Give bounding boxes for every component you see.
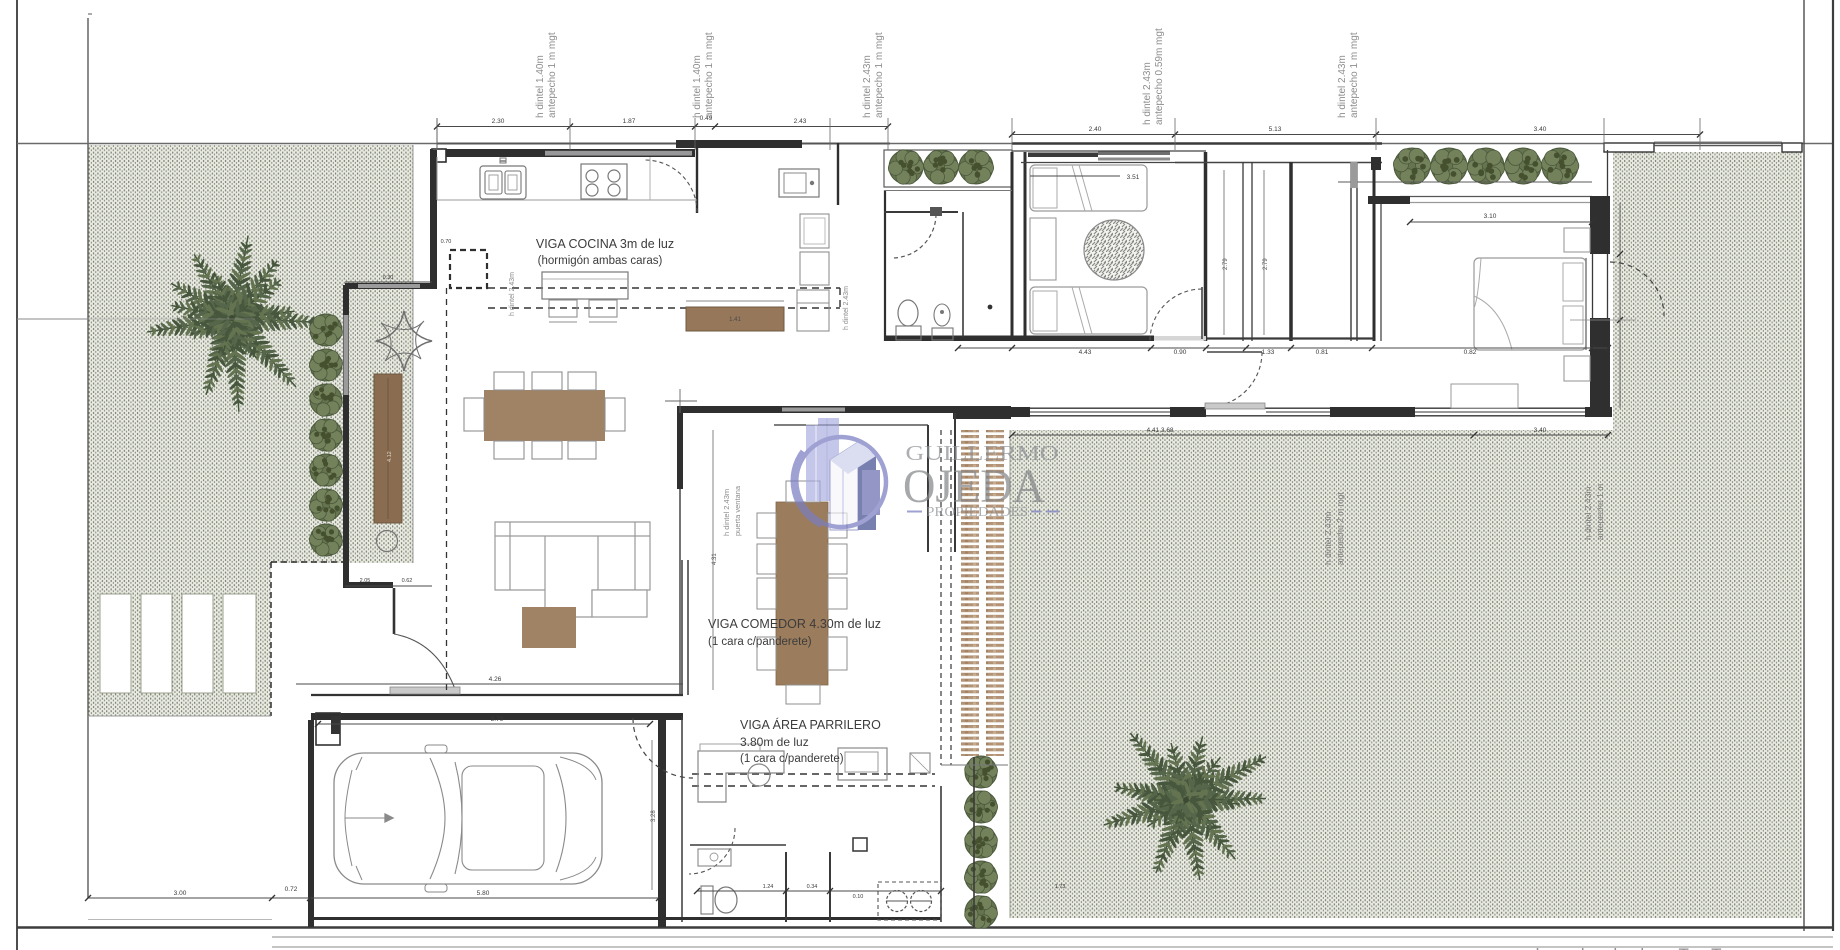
svg-text:VIGA COMEDOR 4.30m de luz: VIGA COMEDOR 4.30m de luz xyxy=(708,617,881,631)
svg-text:3.28: 3.28 xyxy=(651,810,657,822)
svg-text:h dintel 2.43m: h dintel 2.43m xyxy=(1142,62,1153,125)
svg-text:3.00: 3.00 xyxy=(174,890,187,897)
svg-text:0.30: 0.30 xyxy=(383,275,394,281)
svg-text:1.41: 1.41 xyxy=(729,317,741,323)
svg-text:1.33: 1.33 xyxy=(1262,349,1275,356)
svg-text:h dintel 2.43m: h dintel 2.43m xyxy=(1323,512,1333,565)
svg-text:PROPIEDADES: PROPIEDADES xyxy=(926,505,1028,520)
svg-text:3.40: 3.40 xyxy=(1534,126,1547,133)
svg-text:0.82: 0.82 xyxy=(1464,349,1477,356)
svg-text:2.05: 2.05 xyxy=(360,578,371,584)
svg-text:0.62: 0.62 xyxy=(402,578,413,584)
svg-text:(hormigón ambas caras): (hormigón ambas caras) xyxy=(538,255,663,267)
svg-text:3.40: 3.40 xyxy=(1534,427,1547,434)
svg-text:antepecho 2 m mgt: antepecho 2 m mgt xyxy=(1335,492,1345,565)
svg-text:(1 cara c/panderete): (1 cara c/panderete) xyxy=(740,753,844,765)
svg-text:0.81: 0.81 xyxy=(1316,349,1329,356)
svg-text:h dintel 2.43m: h dintel 2.43m xyxy=(1583,487,1593,540)
svg-text:0.34: 0.34 xyxy=(807,884,818,890)
svg-text:h dintel 2.43m: h dintel 2.43m xyxy=(862,55,873,118)
svg-text:antepecho 1 m mgt: antepecho 1 m mgt xyxy=(547,32,558,118)
svg-text:0.72: 0.72 xyxy=(285,886,298,893)
svg-text:3.10: 3.10 xyxy=(1484,213,1497,220)
svg-text:VIGA COCINA 3m de luz: VIGA COCINA 3m de luz xyxy=(536,237,674,251)
svg-text:4.41 3.68: 4.41 3.68 xyxy=(1146,427,1173,434)
svg-text:h dintel 1.40m: h dintel 1.40m xyxy=(692,55,703,118)
svg-text:0.90: 0.90 xyxy=(1174,349,1187,356)
svg-text:0.10: 0.10 xyxy=(853,894,864,900)
svg-text:4.31: 4.31 xyxy=(712,553,718,565)
svg-text:4.26: 4.26 xyxy=(489,676,502,683)
svg-text:5.13: 5.13 xyxy=(1269,126,1282,133)
svg-text:antepecho 1 m mgt: antepecho 1 m mgt xyxy=(874,32,885,118)
svg-text:1.24: 1.24 xyxy=(763,884,774,890)
svg-text:2.79: 2.79 xyxy=(1263,258,1269,270)
svg-text:antepecho 1 m mgt: antepecho 1 m mgt xyxy=(1349,32,1360,118)
svg-text:4.12: 4.12 xyxy=(387,451,393,462)
svg-text:2.43: 2.43 xyxy=(794,118,807,125)
svg-text:antepecho 0.59m mgt: antepecho 0.59m mgt xyxy=(1154,28,1165,125)
svg-text:2.30: 2.30 xyxy=(492,118,505,125)
svg-text:1.73: 1.73 xyxy=(1055,884,1066,890)
svg-text:5.80: 5.80 xyxy=(477,890,490,897)
svg-text:h dintel 2.43m: h dintel 2.43m xyxy=(1337,55,1348,118)
svg-text:VIGA ÁREA PARRILERO: VIGA ÁREA PARRILERO xyxy=(740,717,881,732)
svg-text:(1 cara c/panderete): (1 cara c/panderete) xyxy=(708,636,812,648)
svg-text:0.70: 0.70 xyxy=(441,239,452,245)
svg-text:l and ada las Tu Tu: l and ada las Tu Tu xyxy=(1536,945,1737,950)
svg-text:puerta ventana: puerta ventana xyxy=(733,485,742,536)
svg-text:h dintel 2.43m: h dintel 2.43m xyxy=(509,272,516,316)
svg-text:h dintel 2.43m: h dintel 2.43m xyxy=(843,286,850,330)
svg-text:5.79: 5.79 xyxy=(491,716,504,723)
svg-text:4.43: 4.43 xyxy=(1079,349,1092,356)
svg-text:3.51: 3.51 xyxy=(1127,174,1140,181)
svg-text:1.87: 1.87 xyxy=(623,118,636,125)
svg-text:antepecho 1 m: antepecho 1 m xyxy=(1595,484,1605,540)
svg-text:h dintel 1.40m: h dintel 1.40m xyxy=(535,55,546,118)
svg-text:antepecho 1 m mgt: antepecho 1 m mgt xyxy=(704,32,715,118)
svg-text:2.79: 2.79 xyxy=(1223,258,1229,270)
svg-text:h dintel 2.43m: h dintel 2.43m xyxy=(722,489,731,536)
svg-text:3.80m de luz: 3.80m de luz xyxy=(740,735,809,749)
svg-text:2.40: 2.40 xyxy=(1089,126,1102,133)
